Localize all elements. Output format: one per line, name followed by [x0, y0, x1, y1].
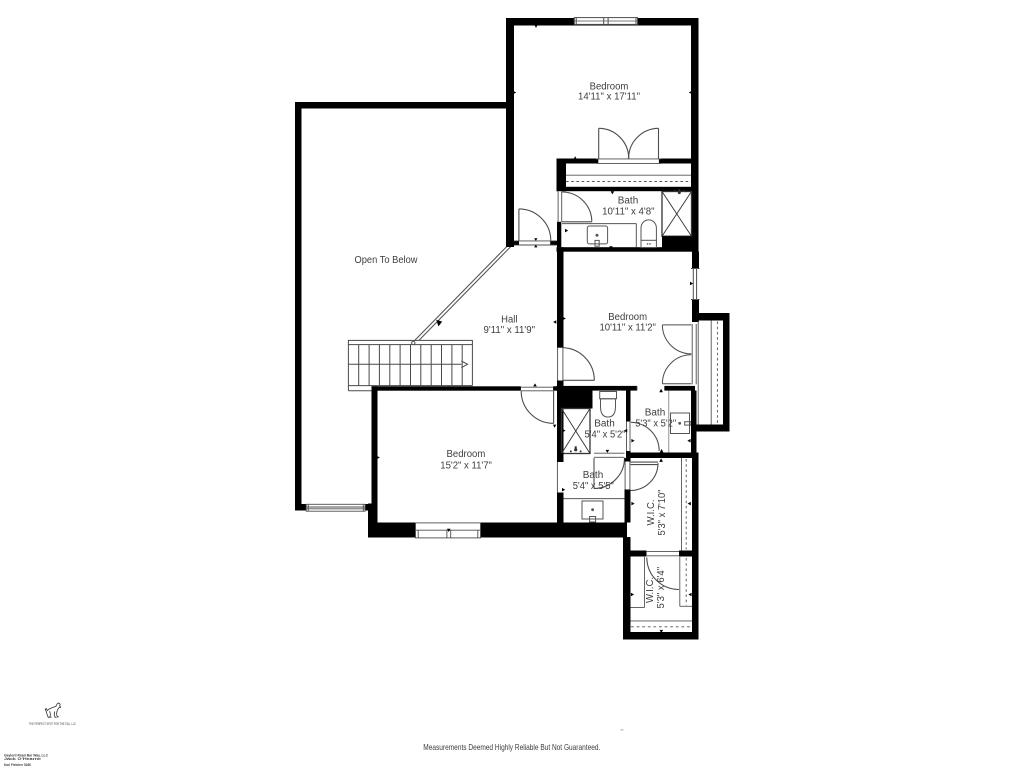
svg-text:Bath: Bath [618, 196, 639, 207]
svg-text:Bedroom: Bedroom [447, 449, 486, 460]
svg-text:W.I.C.: W.I.C. [645, 577, 656, 603]
svg-text:Jack O'Hearne: Jack O'Hearne [4, 756, 42, 761]
svg-text:Open To Below: Open To Below [355, 255, 419, 266]
svg-text:10'11" x 4'8": 10'11" x 4'8" [602, 207, 655, 218]
svg-text:THE PERFECT SPOT FOR THE TAIL,: THE PERFECT SPOT FOR THE TAIL, LLC [29, 721, 76, 726]
svg-text:5'4" x 5'5": 5'4" x 5'5" [573, 481, 615, 492]
svg-text:10'11" x 11'2": 10'11" x 11'2" [599, 323, 656, 334]
svg-text:Bath: Bath [583, 470, 604, 481]
svg-text:Bath: Bath [645, 407, 666, 418]
svg-text:5'3" x 6'4": 5'3" x 6'4" [656, 566, 667, 608]
svg-text:Bath: Bath [594, 418, 615, 429]
svg-text:14'11" x 17'11": 14'11" x 17'11" [578, 91, 640, 102]
svg-text:9'11" x 11'9": 9'11" x 11'9" [484, 325, 536, 336]
svg-text:Bedroom: Bedroom [608, 312, 647, 323]
svg-text:5'4" x 5'2": 5'4" x 5'2" [585, 429, 626, 440]
svg-text:Measurements Deemed Highly Rel: Measurements Deemed Highly Reliable But … [423, 743, 600, 752]
svg-text:Karl Fletcher 5280: Karl Fletcher 5280 [4, 762, 32, 767]
svg-text:5'3" x 7'10": 5'3" x 7'10" [657, 489, 668, 535]
svg-text:15'2" x 11'7": 15'2" x 11'7" [440, 461, 492, 472]
svg-text:W.I.C.: W.I.C. [646, 500, 657, 526]
svg-text:Hall: Hall [501, 315, 517, 326]
